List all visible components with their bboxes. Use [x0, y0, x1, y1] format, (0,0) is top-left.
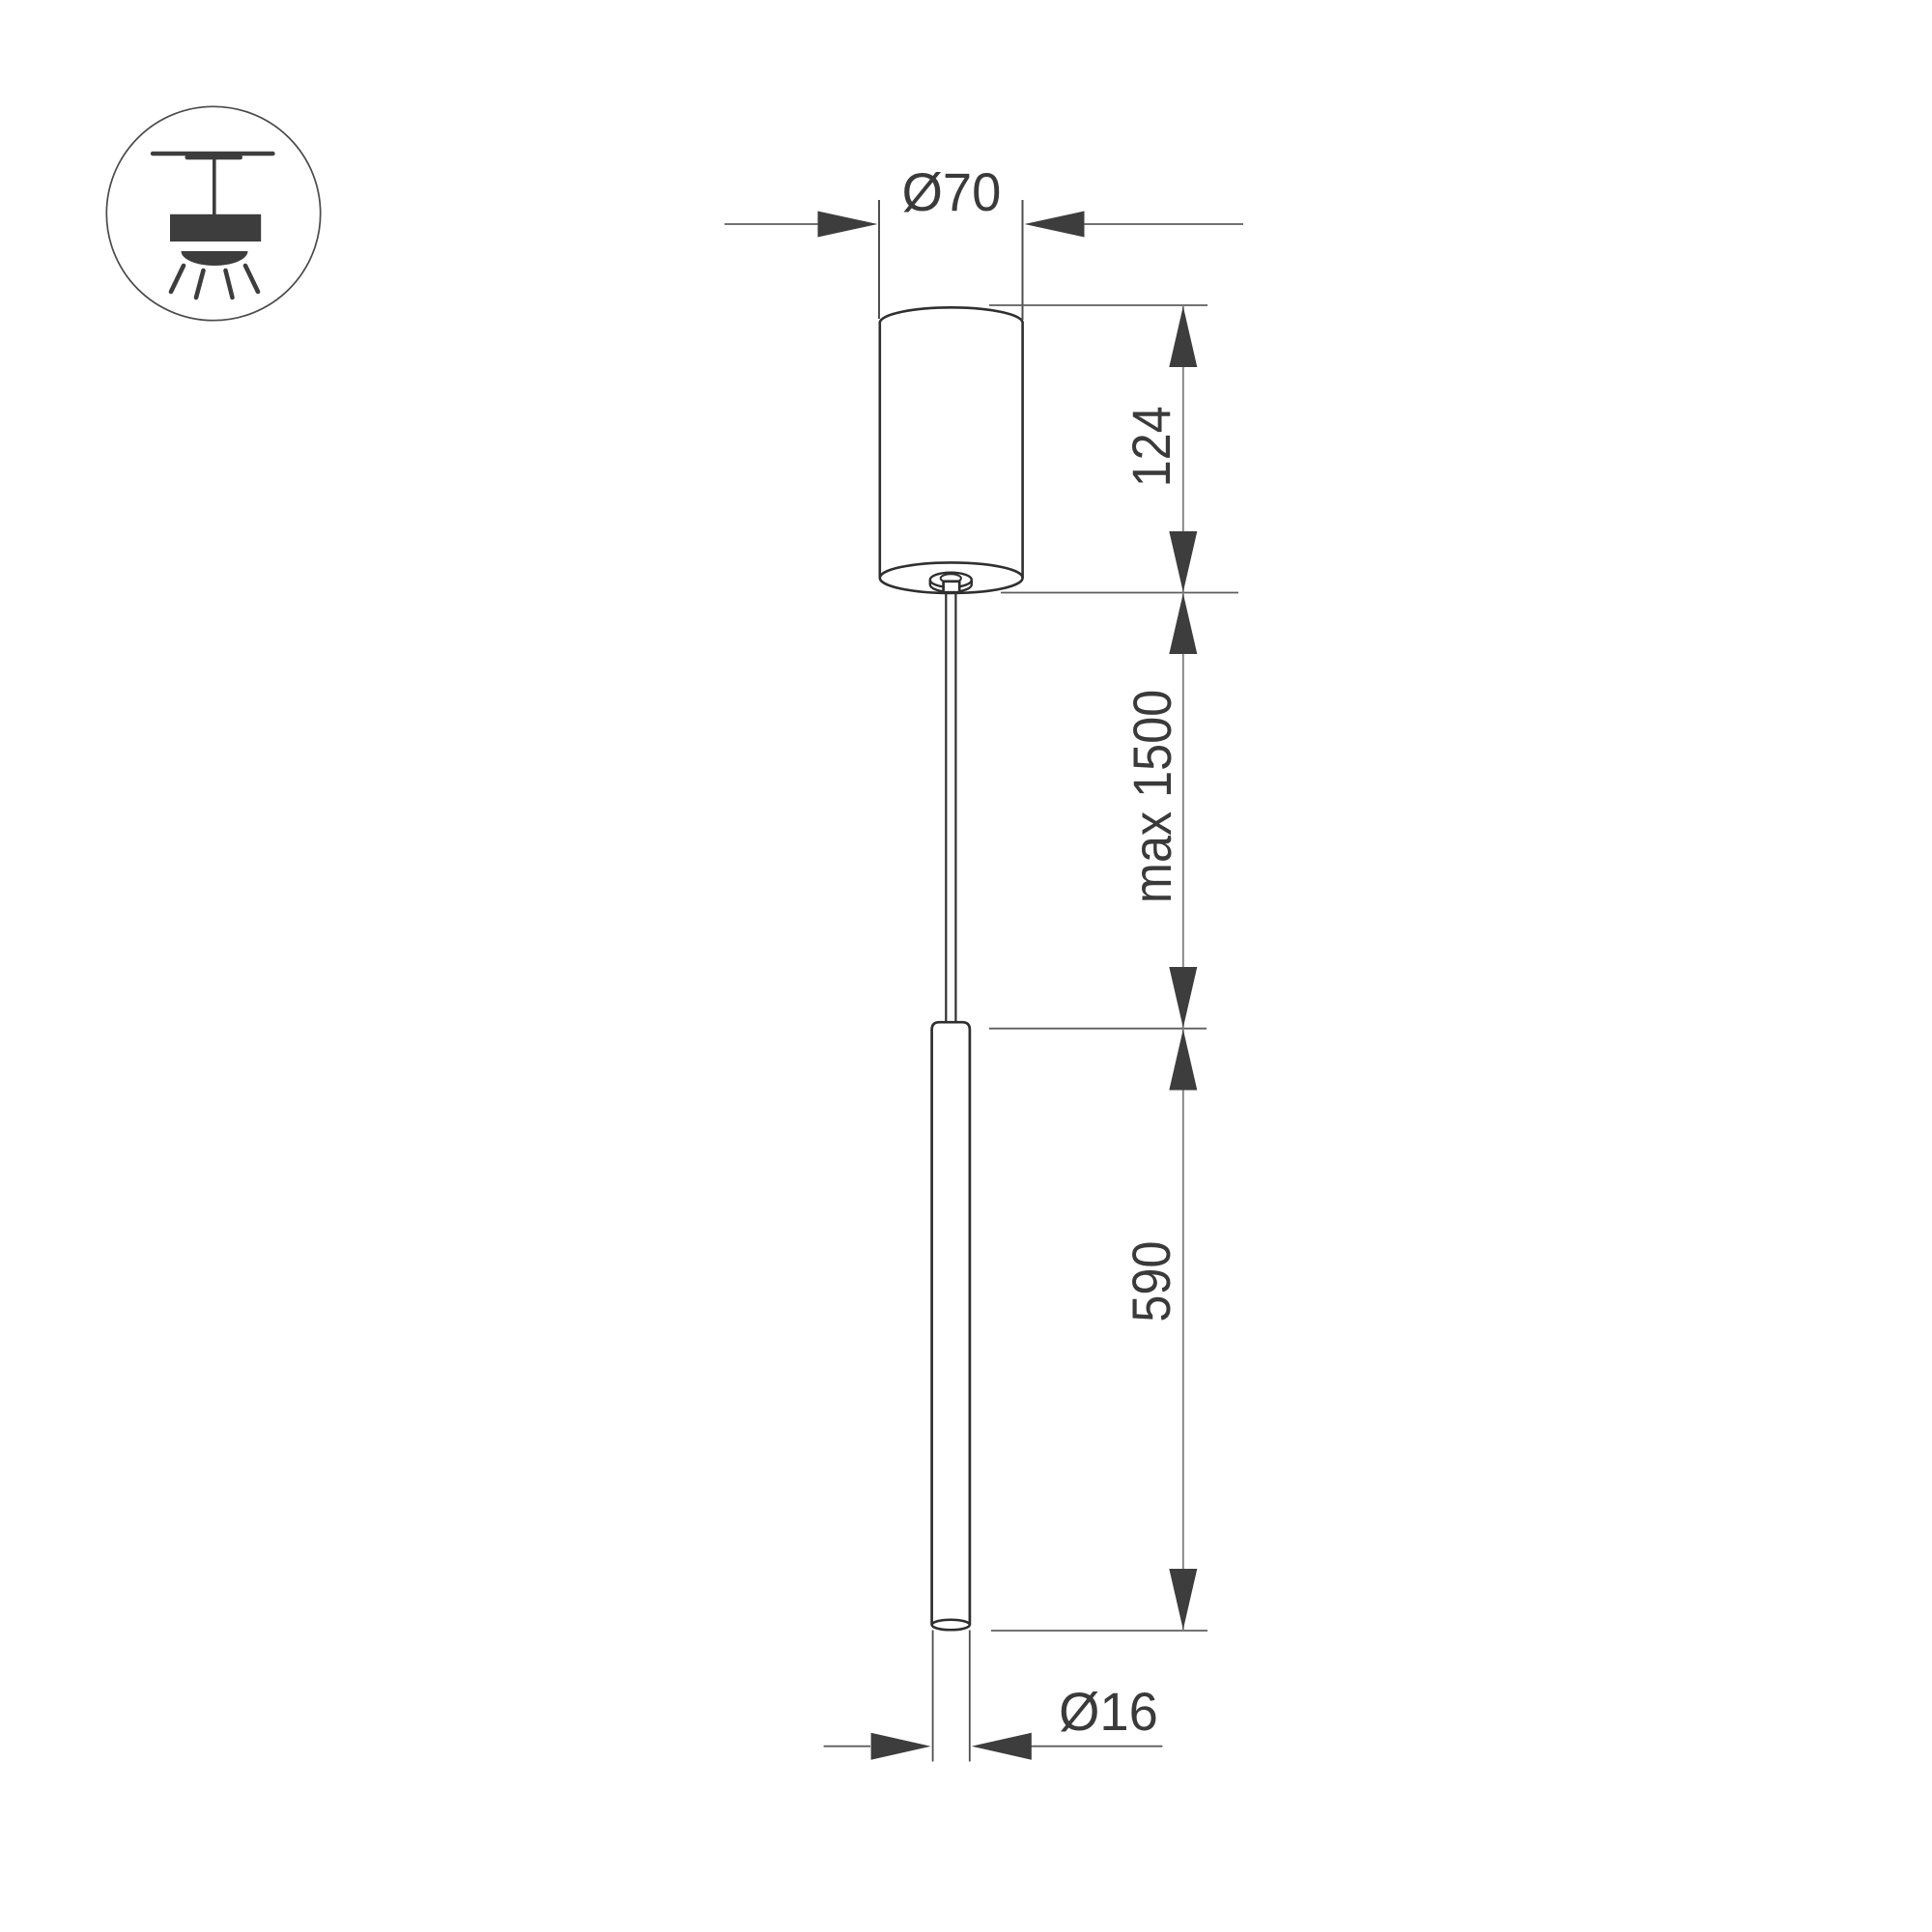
svg-text:590: 590: [1122, 1241, 1182, 1322]
svg-text:124: 124: [1122, 406, 1181, 487]
svg-text:Ø16: Ø16: [1059, 1681, 1158, 1742]
svg-text:max 1500: max 1500: [1123, 690, 1183, 903]
svg-text:Ø70: Ø70: [902, 161, 1002, 222]
